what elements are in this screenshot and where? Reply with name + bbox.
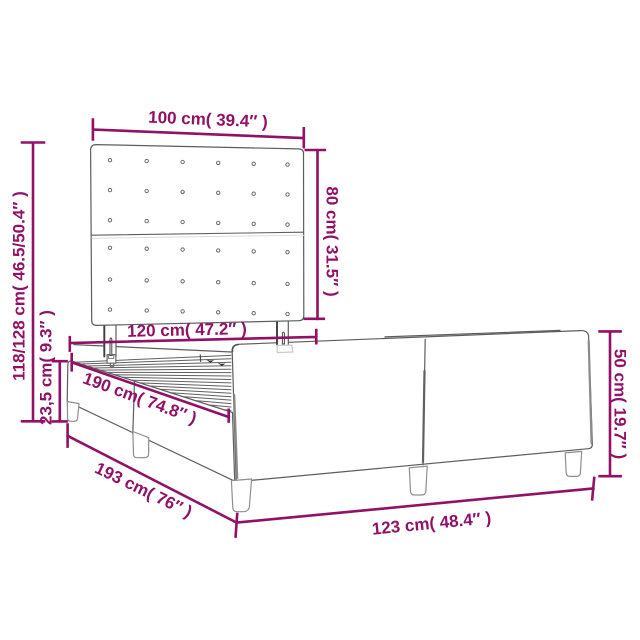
svg-text:23,5 cm( 9.3″ ): 23,5 cm( 9.3″ ) bbox=[36, 310, 55, 425]
svg-text:50 cm( 19.7″ ): 50 cm( 19.7″ ) bbox=[610, 349, 629, 459]
svg-text:80 cm( 31.5″ ): 80 cm( 31.5″ ) bbox=[322, 186, 341, 296]
svg-text:118/128 cm( 46.5/50.4″ ): 118/128 cm( 46.5/50.4″ ) bbox=[10, 191, 29, 381]
svg-text:120 cm( 47.2″ ): 120 cm( 47.2″ ) bbox=[127, 319, 247, 341]
